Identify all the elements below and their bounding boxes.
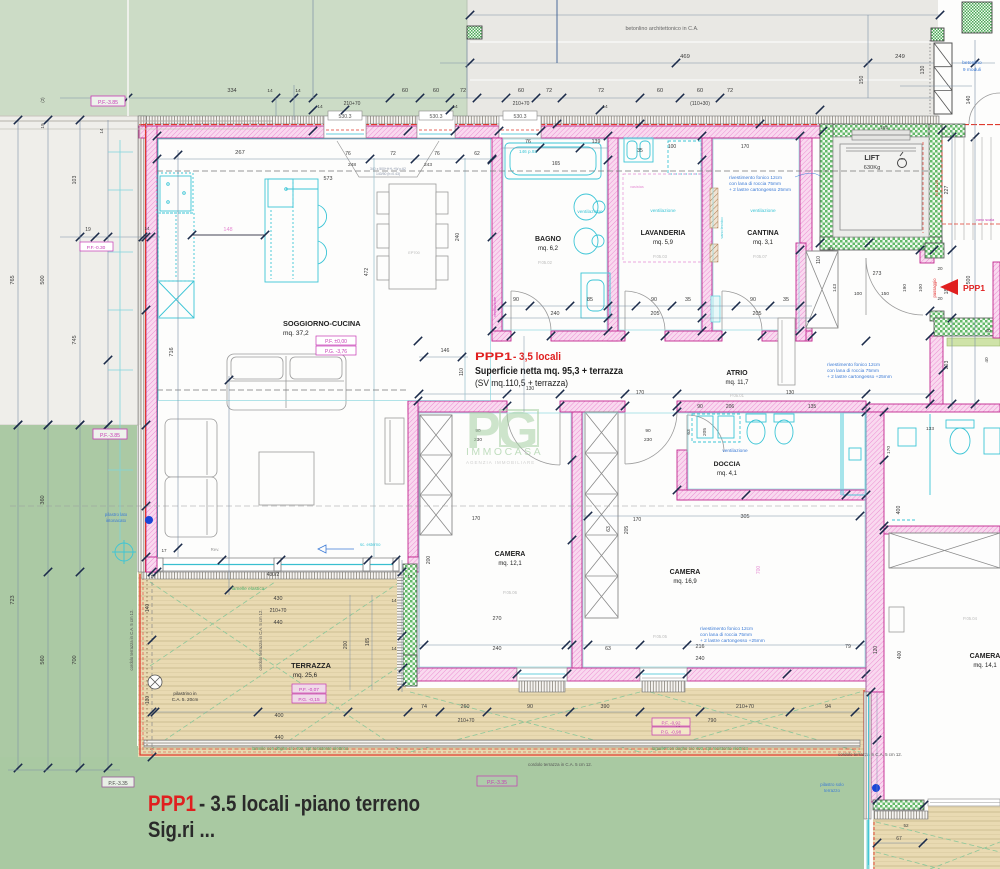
svg-text:700: 700 <box>756 566 762 575</box>
svg-text:135: 135 <box>808 404 817 410</box>
svg-text:pilastro lato: pilastro lato <box>105 512 128 517</box>
svg-text:Superficie netta mq. 95,3 + te: Superficie netta mq. 95,3 + terrazza <box>475 365 623 377</box>
svg-text:360: 360 <box>40 495 46 504</box>
svg-text:240: 240 <box>696 656 705 662</box>
svg-text:140: 140 <box>145 604 151 613</box>
svg-text:130: 130 <box>920 66 926 75</box>
svg-text:205: 205 <box>702 428 708 436</box>
svg-text:IMMOCASA: IMMOCASA <box>466 446 543 458</box>
svg-text:210+70: 210+70 <box>736 704 754 710</box>
svg-text:72: 72 <box>460 88 466 94</box>
svg-text:205: 205 <box>753 311 762 317</box>
svg-text:R.E.I.120: R.E.I.120 <box>935 180 939 196</box>
svg-text:67: 67 <box>896 836 902 842</box>
svg-text:40: 40 <box>827 246 833 252</box>
svg-text:14: 14 <box>391 598 397 603</box>
svg-text:ventilazione: ventilazione <box>722 448 748 454</box>
svg-text:terrazzo: terrazzo <box>824 788 840 793</box>
svg-text:469: 469 <box>680 54 690 60</box>
svg-text:716: 716 <box>169 347 175 356</box>
svg-text:EP700: EP700 <box>408 251 419 255</box>
svg-text:TERRAZZA: TERRAZZA <box>291 661 331 670</box>
svg-text:19: 19 <box>85 227 91 233</box>
svg-text:165: 165 <box>552 161 561 167</box>
svg-text:72: 72 <box>727 88 733 94</box>
svg-text:90: 90 <box>513 297 519 303</box>
svg-text:rivestimento fonico 12cm: rivestimento fonico 12cm <box>729 175 782 181</box>
svg-text:146 p.92: 146 p.92 <box>519 149 537 154</box>
svg-text:ventilazione: ventilazione <box>650 208 676 214</box>
svg-text:20: 20 <box>937 296 943 301</box>
svg-text:334: 334 <box>227 88 236 94</box>
svg-text:P.F.-3.35: P.F.-3.35 <box>108 781 128 787</box>
svg-text:betonlino: betonlino <box>962 60 982 66</box>
svg-text:210+70: 210+70 <box>270 608 287 614</box>
svg-text:76: 76 <box>434 151 440 157</box>
svg-text:90: 90 <box>651 297 657 303</box>
svg-text:mq. 6,2: mq. 6,2 <box>538 246 559 252</box>
svg-text:35: 35 <box>637 148 643 154</box>
svg-text:76: 76 <box>345 151 351 157</box>
svg-text:72: 72 <box>598 88 604 94</box>
svg-text:90: 90 <box>527 704 533 710</box>
svg-text:140/50 (h=0.43): 140/50 (h=0.43) <box>376 172 400 176</box>
svg-text:(SV mq.110,5 + terrazza): (SV mq.110,5 + terrazza) <box>475 378 568 388</box>
svg-text:ventilazione: ventilazione <box>493 297 497 317</box>
svg-text:P.05.04: P.05.04 <box>963 616 978 621</box>
svg-text:267: 267 <box>235 150 245 156</box>
svg-text:200: 200 <box>343 641 349 650</box>
svg-text:60: 60 <box>518 88 524 94</box>
svg-text:P.05.06: P.05.06 <box>503 590 518 595</box>
svg-text:400: 400 <box>275 713 284 719</box>
svg-text:94: 94 <box>825 704 831 710</box>
svg-text:130: 130 <box>145 696 151 705</box>
svg-text:9 moduli: 9 moduli <box>963 67 981 73</box>
svg-text:430: 430 <box>274 596 283 602</box>
svg-text:270: 270 <box>493 616 502 622</box>
svg-text:P.05.03: P.05.03 <box>653 254 668 259</box>
svg-text:200: 200 <box>426 556 432 565</box>
svg-text:vasistas: vasistas <box>630 185 644 189</box>
svg-text:90: 90 <box>750 297 756 303</box>
svg-text:440: 440 <box>274 620 283 626</box>
svg-text:170: 170 <box>472 516 481 522</box>
svg-text:340 x 500+H+L+W p.62: 340 x 500+H+L+W p.62 <box>370 167 406 171</box>
svg-text:(2): (2) <box>40 97 45 103</box>
svg-text:- 3,5 locali: - 3,5 locali <box>513 351 561 363</box>
svg-text:790: 790 <box>708 718 717 724</box>
svg-text:P.05.02: P.05.02 <box>538 260 553 265</box>
svg-text:ATRIO: ATRIO <box>726 370 748 377</box>
svg-text:74: 74 <box>421 704 427 710</box>
svg-text:vano scala: vano scala <box>976 218 995 222</box>
svg-text:60: 60 <box>433 88 439 94</box>
svg-text:210+70: 210+70 <box>344 101 361 107</box>
svg-text:LIFT: LIFT <box>864 153 880 162</box>
svg-text:60: 60 <box>657 88 663 94</box>
svg-text:ventilazione: ventilazione <box>750 208 776 214</box>
svg-text:CANTINA: CANTINA <box>747 230 779 237</box>
svg-text:430/2: 430/2 <box>267 572 280 578</box>
svg-text:90: 90 <box>697 404 703 410</box>
svg-text:14: 14 <box>99 128 104 134</box>
svg-text:60: 60 <box>697 88 703 94</box>
svg-text:170: 170 <box>636 390 645 396</box>
svg-text:P.F.-3.85: P.F.-3.85 <box>100 433 120 439</box>
svg-text:63: 63 <box>686 429 692 435</box>
svg-text:14: 14 <box>144 226 150 231</box>
svg-text:40: 40 <box>984 357 990 363</box>
svg-text:40: 40 <box>985 328 991 334</box>
svg-text:CAMERA: CAMERA <box>970 653 1000 660</box>
svg-text:745: 745 <box>72 335 78 344</box>
svg-text:(110+30): (110+30) <box>690 101 710 107</box>
svg-text:14: 14 <box>317 104 323 110</box>
svg-text:240: 240 <box>455 233 461 242</box>
svg-text:248: 248 <box>348 162 356 168</box>
svg-text:P.F. -0,07: P.F. -0,07 <box>299 687 319 693</box>
svg-text:305: 305 <box>741 514 750 520</box>
svg-text:17: 17 <box>407 574 413 579</box>
svg-text:76: 76 <box>525 139 531 145</box>
svg-text:390: 390 <box>601 704 610 710</box>
svg-text:210+70: 210+70 <box>458 718 475 724</box>
svg-text:700: 700 <box>72 655 78 664</box>
svg-text:cordolo terrazza in C.A. 5 cm: cordolo terrazza in C.A. 5 cm 12. <box>129 610 134 671</box>
svg-text:210+70: 210+70 <box>513 101 530 107</box>
svg-text:sc. esterno: sc. esterno <box>360 542 381 547</box>
svg-text:CAMERA: CAMERA <box>495 551 526 558</box>
svg-text:mq. 14,1: mq. 14,1 <box>973 663 997 669</box>
svg-text:110: 110 <box>816 256 822 264</box>
svg-text:20: 20 <box>937 266 943 271</box>
svg-text:190: 190 <box>902 284 908 292</box>
svg-text:573: 573 <box>324 176 333 182</box>
svg-text:133: 133 <box>926 426 934 432</box>
svg-text:P.05.01: P.05.01 <box>730 393 745 398</box>
svg-text:PPP1: PPP1 <box>475 351 512 363</box>
svg-text:rivestimento fonico 12cm: rivestimento fonico 12cm <box>827 362 880 368</box>
svg-text:cordolo terrazza in C.A. 5 cm: cordolo terrazza in C.A. 5 cm 12. <box>258 610 263 671</box>
svg-text:530.3: 530.3 <box>514 114 527 120</box>
svg-text:249: 249 <box>895 54 905 60</box>
svg-text:35: 35 <box>783 297 789 303</box>
svg-text:SOGGIORNO-CUCINA: SOGGIORNO-CUCINA <box>283 319 361 328</box>
svg-text:BAGNO: BAGNO <box>535 236 562 243</box>
svg-text:400: 400 <box>896 506 902 515</box>
svg-text:intonacato: intonacato <box>106 518 127 523</box>
svg-text:con lana di roccia 75mm: con lana di roccia 75mm <box>729 181 781 187</box>
svg-text:240: 240 <box>551 311 560 317</box>
svg-text:mq. 37,2: mq. 37,2 <box>283 330 309 337</box>
svg-text:150: 150 <box>881 291 889 297</box>
svg-text:con lana di roccia 75mm: con lana di roccia 75mm <box>827 368 879 374</box>
svg-text:440: 440 <box>275 735 284 741</box>
svg-text:230: 230 <box>644 437 652 443</box>
svg-text:110: 110 <box>459 368 465 376</box>
svg-text:472: 472 <box>364 268 370 277</box>
svg-text:DOCCIA: DOCCIA <box>714 461 741 468</box>
svg-text:Sig.ri ...: Sig.ri ... <box>148 817 215 842</box>
svg-text:35: 35 <box>685 297 691 303</box>
svg-text:14: 14 <box>452 104 458 110</box>
svg-text:273: 273 <box>873 271 882 277</box>
svg-text:17: 17 <box>161 548 167 553</box>
svg-text:PPP1: PPP1 <box>148 791 196 816</box>
svg-text:betonlino architettonico in C.: betonlino architettonico in C.A. <box>625 26 698 32</box>
svg-text:165: 165 <box>880 125 888 131</box>
svg-text:72: 72 <box>390 151 396 157</box>
svg-text:140: 140 <box>966 96 972 105</box>
svg-text:170: 170 <box>886 446 892 454</box>
svg-text:400: 400 <box>897 651 903 660</box>
svg-text:PPP1: PPP1 <box>963 283 985 293</box>
svg-text:227: 227 <box>944 186 950 195</box>
svg-text:530.3: 530.3 <box>339 114 352 120</box>
svg-text:90: 90 <box>645 428 651 434</box>
svg-text:Rev.: Rev. <box>211 547 220 552</box>
svg-text:19: 19 <box>40 123 45 129</box>
svg-text:63: 63 <box>606 526 612 532</box>
svg-text:85: 85 <box>587 297 593 303</box>
svg-text:723: 723 <box>10 595 16 604</box>
svg-text:52: 52 <box>903 823 909 828</box>
svg-text:243: 243 <box>424 162 432 168</box>
svg-text:P.F. -0,92: P.F. -0,92 <box>661 721 681 726</box>
svg-text:14: 14 <box>267 88 273 94</box>
svg-text:C.A. 5. 20cm: C.A. 5. 20cm <box>172 697 199 702</box>
svg-text:cordolo terrazza in C.A. 5 cm: cordolo terrazza in C.A. 5 cm 12. <box>528 762 592 767</box>
svg-text:146: 146 <box>441 348 450 354</box>
svg-text:170: 170 <box>741 144 750 150</box>
svg-text:14: 14 <box>602 104 608 110</box>
svg-text:mq. 4,1: mq. 4,1 <box>717 471 738 477</box>
svg-text:lamelle elastica: lamelle elastica <box>232 586 265 592</box>
svg-text:148: 148 <box>223 227 232 233</box>
svg-text:103: 103 <box>72 176 78 185</box>
svg-text:LAVANDERIA: LAVANDERIA <box>641 230 686 237</box>
svg-text:pilastrino in: pilastrino in <box>173 691 197 696</box>
svg-text:130: 130 <box>786 390 795 396</box>
svg-text:765: 765 <box>10 275 16 284</box>
svg-text:165: 165 <box>365 638 371 647</box>
svg-text:14: 14 <box>391 646 397 651</box>
svg-text:cordolo terrazza in C.A. 5 cm: cordolo terrazza in C.A. 5 cm 12. <box>838 752 902 757</box>
svg-text:205: 205 <box>624 526 630 535</box>
svg-text:60: 60 <box>402 88 408 94</box>
svg-text:rivestimento fonico 12cm: rivestimento fonico 12cm <box>700 626 753 632</box>
svg-text:+ 2 lastre cartongesso +25mm: + 2 lastre cartongesso +25mm <box>827 374 892 380</box>
svg-text:mq. 12,1: mq. 12,1 <box>498 561 522 567</box>
svg-text:CAMERA: CAMERA <box>670 569 701 576</box>
svg-text:pilastro solo: pilastro solo <box>820 782 844 787</box>
svg-text:14: 14 <box>295 88 301 94</box>
svg-text:100: 100 <box>668 144 677 150</box>
svg-text:63: 63 <box>605 646 611 652</box>
svg-text:vano tecnico: vano tecnico <box>720 217 724 238</box>
svg-text:con lana di roccia 75mm: con lana di roccia 75mm <box>700 632 752 638</box>
svg-text:P.G. -3,76: P.G. -3,76 <box>325 349 347 355</box>
svg-text:500: 500 <box>40 275 46 284</box>
svg-text:+ 2 lastre cartongesso +25mm: + 2 lastre cartongesso +25mm <box>700 638 765 644</box>
svg-text:100: 100 <box>918 284 924 292</box>
svg-text:mq. 5,9: mq. 5,9 <box>653 240 674 246</box>
svg-text:120: 120 <box>873 646 879 655</box>
svg-text:mq. 3,1: mq. 3,1 <box>753 240 774 246</box>
svg-text:630Kg: 630Kg <box>864 165 881 171</box>
svg-text:mq. 11,7: mq. 11,7 <box>726 380 750 386</box>
svg-text:ventilazione: ventilazione <box>577 209 603 215</box>
svg-text:170: 170 <box>633 517 642 523</box>
svg-text:139: 139 <box>592 139 601 145</box>
svg-text:240: 240 <box>493 646 502 652</box>
svg-text:P.G. -0,15: P.G. -0,15 <box>298 697 320 703</box>
svg-text:lamelle con doghe c/o 400, spt: lamelle con doghe c/o 400, spt resistent… <box>252 746 349 751</box>
svg-text:P.F.-3.35: P.F.-3.35 <box>487 780 507 786</box>
svg-text:62: 62 <box>474 151 480 157</box>
svg-text:P.F.-3.85: P.F.-3.85 <box>98 100 118 106</box>
svg-text:- 3.5 locali -piano terreno: - 3.5 locali -piano terreno <box>199 791 420 816</box>
svg-text:AGENZIA IMMOBILIARE: AGENZIA IMMOBILIARE <box>466 460 535 465</box>
svg-text:P.G. -0,98: P.G. -0,98 <box>661 730 682 735</box>
svg-text:260: 260 <box>461 704 470 710</box>
svg-text:205: 205 <box>651 311 660 317</box>
svg-text:mq. 25,6: mq. 25,6 <box>293 672 318 679</box>
svg-text:143: 143 <box>832 284 838 292</box>
svg-text:passaggio: passaggio <box>932 278 937 298</box>
svg-text:P.F. ±0,00: P.F. ±0,00 <box>325 339 347 345</box>
svg-text:lamelle con doghe c/o 400, spt: lamelle con doghe c/o 400, spt resistent… <box>652 746 749 751</box>
svg-text:+ 2 lastre cartongesso 25mm: + 2 lastre cartongesso 25mm <box>729 187 791 193</box>
svg-text:530.3: 530.3 <box>430 114 443 120</box>
svg-text:P.F.-0.30: P.F.-0.30 <box>87 245 106 251</box>
svg-text:100: 100 <box>854 291 862 297</box>
svg-text:560: 560 <box>40 655 46 664</box>
svg-text:72: 72 <box>546 88 552 94</box>
svg-text:mq. 16,9: mq. 16,9 <box>673 579 697 585</box>
svg-text:P.05.05: P.05.05 <box>653 634 668 639</box>
svg-text:P.05.07: P.05.07 <box>753 254 768 259</box>
svg-text:150: 150 <box>859 76 865 85</box>
svg-text:206: 206 <box>726 404 735 410</box>
